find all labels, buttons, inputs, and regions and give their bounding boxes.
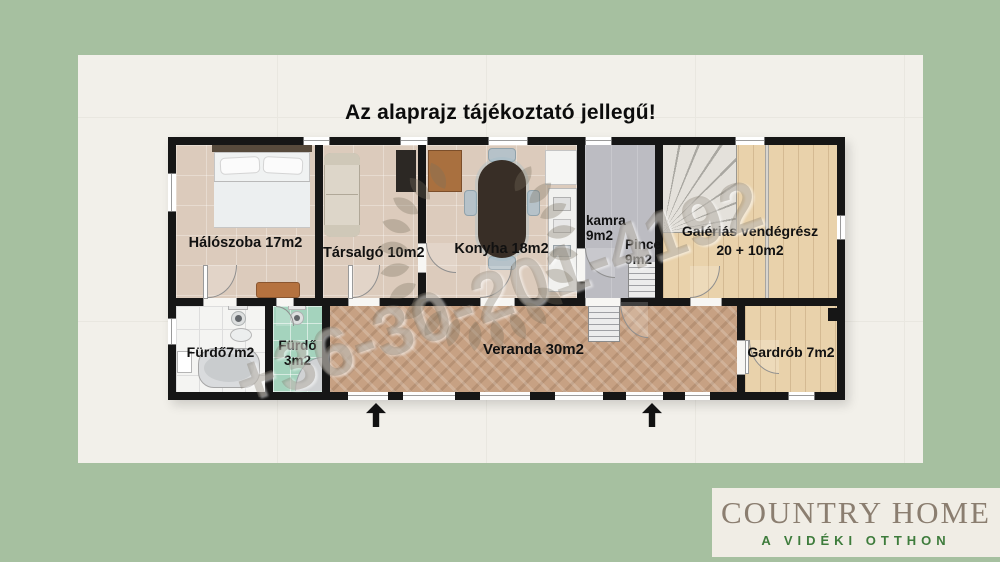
wall-segment [315,145,323,298]
window [303,137,330,145]
wall-segment [265,306,273,392]
room-label-konyha: Konyha 18m2 [426,241,577,257]
room-area: 9m2 [625,252,661,267]
stairs-winder [663,145,737,233]
room-label-kamra: kamra 9m2 [586,213,626,243]
railing-post [603,392,626,400]
room-name: Pince [625,237,661,252]
floor-plan: Hálószoba 17m2 Társalgó 10m2 Konyha 18m2… [168,137,845,400]
room-label-furdo-nagy: Fürdő7m2 [176,344,265,360]
room-name: Galériás vendégrész [663,222,837,241]
window [400,137,428,145]
door-gap [348,298,380,306]
dining-chair [464,190,477,216]
plan-sheet: Az alaprajz tájékoztató jellegű! [78,55,923,463]
room-label-haloszoba: Hálószoba 17m2 [176,235,315,251]
railing-post [388,392,403,400]
stairs-cellar [628,262,658,298]
room-name: Fürdő [273,338,322,353]
toilet-seat [294,315,300,321]
wall-segment [418,145,426,298]
railing-post [530,392,555,400]
room-label-furdo-kis: Fürdő 3m2 [273,338,322,368]
wall-segment [655,145,663,298]
bed-duvet [214,181,310,227]
railing-post [663,392,685,400]
toilet-seat [235,315,242,322]
door-gap [690,298,722,306]
sink [230,328,252,342]
room-label-tarsalgo: Társalgó 10m2 [323,245,418,261]
agency-logo-brand: COUNTRY HOME [712,495,1000,531]
bed-headboard [212,145,312,152]
veranda-railing [330,392,737,400]
door-gap [480,298,515,306]
railing-post [455,392,480,400]
railing-post [330,392,348,400]
window [788,392,815,400]
fridge [545,150,577,185]
railing-post [710,392,737,400]
door-gap [577,248,585,282]
stairs-veranda [588,300,620,342]
sofa-cushion-line [326,194,358,195]
room-name: kamra [586,213,626,228]
room-area: 20 + 10m2 [663,241,837,260]
counter-appliance [553,219,571,233]
door-gap [203,298,237,306]
room-label-veranda: Veranda 30m2 [330,342,737,358]
chimney-stub [828,308,837,321]
window [168,318,176,345]
kitchen-cabinet [428,150,462,192]
room-label-gardrob: Gardrób 7m2 [745,344,837,360]
plan-disclaimer-title: Az alaprajz tájékoztató jellegű! [78,101,923,125]
window [488,137,528,145]
window [585,137,612,145]
wall-segment [322,306,330,392]
bed-pillow [263,156,304,175]
dining-chair [527,190,540,216]
room-area: 3m2 [273,353,322,368]
window [735,137,765,145]
sofa-arm [324,225,360,237]
agency-logo-panel: COUNTRY HOME A VIDÉKI OTTHON [712,488,1000,557]
door-gap [585,298,621,306]
room-label-pince: Pince 9m2 [625,237,661,267]
stove [553,197,571,211]
sofa-arm [324,153,360,165]
entrance-arrow [642,403,662,427]
dresser [256,282,300,298]
door-gap [276,298,294,306]
room-area: 9m2 [586,228,626,243]
bed-pillow [220,156,261,175]
door-gap [737,340,745,375]
tv [396,150,416,192]
entrance-arrow [366,403,386,427]
agency-logo-tagline: A VIDÉKI OTTHON [712,533,1000,548]
window [837,215,845,240]
room-label-galerias: Galériás vendégrész 20 + 10m2 [663,222,837,260]
window [168,173,176,212]
